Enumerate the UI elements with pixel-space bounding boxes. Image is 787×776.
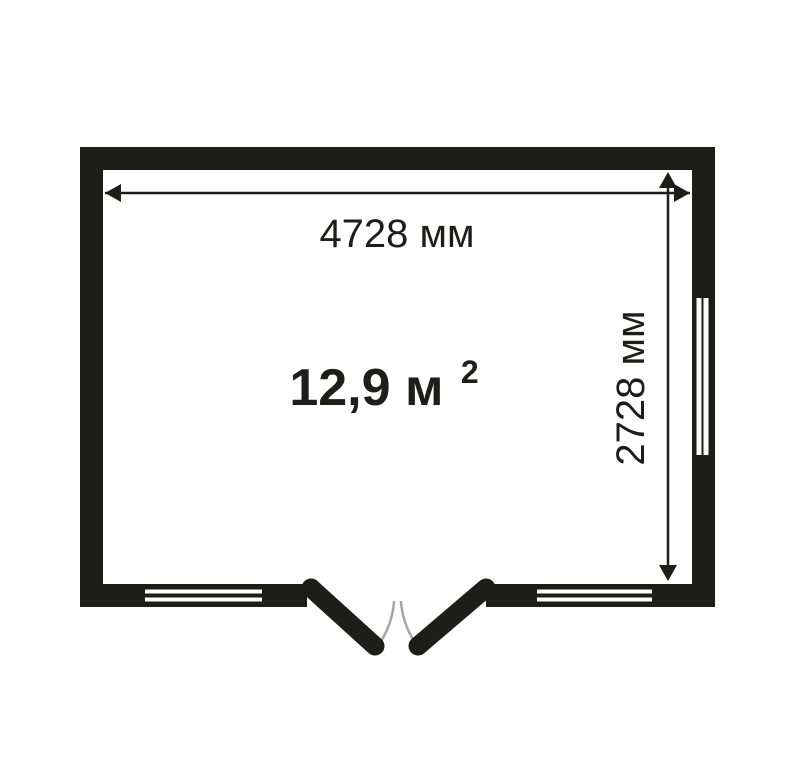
window-bottom-right-pane-1: [537, 590, 652, 594]
floor-plan-svg: 4728 мм 2728 мм 12,9 м 2: [0, 0, 787, 776]
area-label: 12,9 м 2: [289, 354, 478, 417]
wall-top: [80, 147, 715, 170]
window-right-pane-1: [697, 298, 702, 455]
door-leaf-right: [418, 588, 486, 646]
window-bottom-right-pane-2: [537, 598, 652, 602]
floor-plan-canvas: 4728 мм 2728 мм 12,9 м 2: [0, 0, 787, 776]
height-dimension-label: 2728 мм: [609, 310, 653, 465]
wall-bottom-left: [80, 584, 307, 607]
width-dimension: 4728 мм: [105, 184, 690, 256]
window-bottom-left-pane-2: [145, 598, 262, 602]
window-right-pane-2: [704, 298, 709, 455]
double-door-icon: [311, 588, 486, 646]
area-value: 12,9 м: [289, 359, 443, 417]
arrowhead-down-icon: [659, 565, 677, 581]
arrowhead-left-icon: [105, 184, 121, 202]
arrowhead-up-icon: [659, 172, 677, 188]
width-dimension-label: 4728 мм: [319, 212, 474, 256]
door-swing-arc-left: [381, 602, 394, 641]
wall-bottom-right: [486, 584, 715, 607]
window-bottom-left-pane-1: [145, 590, 262, 594]
height-dimension: 2728 мм: [609, 172, 677, 581]
area-exponent: 2: [461, 354, 479, 390]
arrowhead-right-icon: [674, 184, 690, 202]
door-leaf-left: [311, 588, 375, 646]
door-swing-arc-right: [401, 602, 414, 641]
wall-left: [80, 147, 103, 607]
